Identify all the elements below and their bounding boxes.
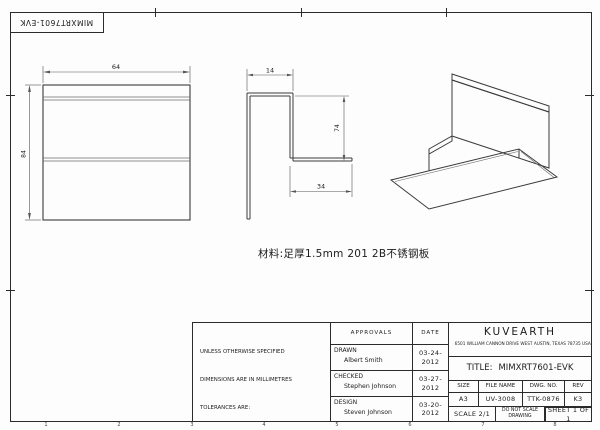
dwgno-header: DWG. NO. <box>523 381 565 393</box>
general-notes: UNLESS OTHERWISE SPECIFIED DIMENSIONS AR… <box>193 323 331 421</box>
dimension-arrows <box>28 71 190 220</box>
zone-number: 7 <box>478 422 488 428</box>
rev-value: K3 <box>565 393 591 407</box>
scale-cell: SCALE 2/1 <box>449 407 496 421</box>
date-header: DATE <box>413 323 449 345</box>
note-line: TOLERANCES ARE: <box>200 404 330 413</box>
zone-number: 6 <box>405 422 415 428</box>
zone-number: 3 <box>187 422 197 428</box>
approval-date: 03-27-2012 <box>413 371 449 397</box>
zone-number: 8 <box>550 422 560 428</box>
dimension-arrows <box>247 74 352 193</box>
approval-name: Albert Smith <box>334 355 412 365</box>
title-row: TITLE: MIMXRT7601-EVK <box>449 357 591 381</box>
side-flange-dimension: 34 <box>317 183 325 191</box>
drawing-views: 64 84 <box>0 0 600 320</box>
title-value: MIMXRT7601-EVK <box>498 363 573 374</box>
filename-value: UV-3008 <box>479 393 523 407</box>
approval-date: 03-20-2012 <box>413 397 449 421</box>
isometric-view <box>391 74 557 209</box>
title-label: TITLE: <box>467 363 493 374</box>
company-address: 6501 WILLIAM CANNON DRIVE WEST AUSTIN, T… <box>455 342 586 347</box>
do-not-scale-cell: DO NOT SCALE DRAWING <box>496 407 545 421</box>
approval-row-design: DESIGN Steven Johnson <box>331 397 413 421</box>
title-block: UNLESS OTHERWISE SPECIFIED DIMENSIONS AR… <box>192 322 592 422</box>
front-height-dimension: 84 <box>21 150 28 158</box>
approvals-header: APPROVALS <box>331 323 413 345</box>
approval-row-drawn: DRAWN Albert Smith <box>331 345 413 371</box>
drawing-sheet: 1 2 3 4 5 6 7 8 MIMXRT7601-EVK <box>0 0 600 430</box>
side-view <box>247 93 352 219</box>
zone-number: 2 <box>114 422 124 428</box>
company-name: KUVEARTH <box>449 326 591 339</box>
dwgno-value: TTK-0876 <box>523 393 565 407</box>
front-view-dimensions <box>25 66 190 220</box>
approval-name: Steven Johnson <box>334 407 412 417</box>
approval-role: DRAWN <box>334 347 412 355</box>
approval-date: 03-24-2012 <box>413 345 449 371</box>
zone-number: 1 <box>41 422 51 428</box>
side-height-dimension: 74 <box>334 124 341 132</box>
front-view <box>43 85 190 220</box>
size-header: SIZE <box>449 381 479 393</box>
size-value: A3 <box>449 393 479 407</box>
filename-header: FILE NAME <box>479 381 523 393</box>
note-line: UNLESS OTHERWISE SPECIFIED <box>200 348 330 357</box>
side-top-dimension: 14 <box>266 67 274 75</box>
sheet-cell: SHEET 1 OF 1 <box>545 407 591 421</box>
approval-row-checked: CHECKED Stephen Johnson <box>331 371 413 397</box>
front-width-dimension: 64 <box>112 63 120 71</box>
note-line: DIMENSIONS ARE IN MILLIMETRES <box>200 376 330 385</box>
zone-number: 5 <box>332 422 342 428</box>
approval-role: CHECKED <box>334 373 412 381</box>
approval-name: Stephen Johnson <box>334 381 412 391</box>
rev-header: REV <box>565 381 591 393</box>
approval-role: DESIGN <box>334 399 412 407</box>
company-block: KUVEARTH 6501 WILLIAM CANNON DRIVE WEST … <box>449 323 591 357</box>
material-note: 材料:足厚1.5mm 201 2B不锈钢板 <box>258 246 430 261</box>
side-view-dimensions <box>247 69 352 197</box>
